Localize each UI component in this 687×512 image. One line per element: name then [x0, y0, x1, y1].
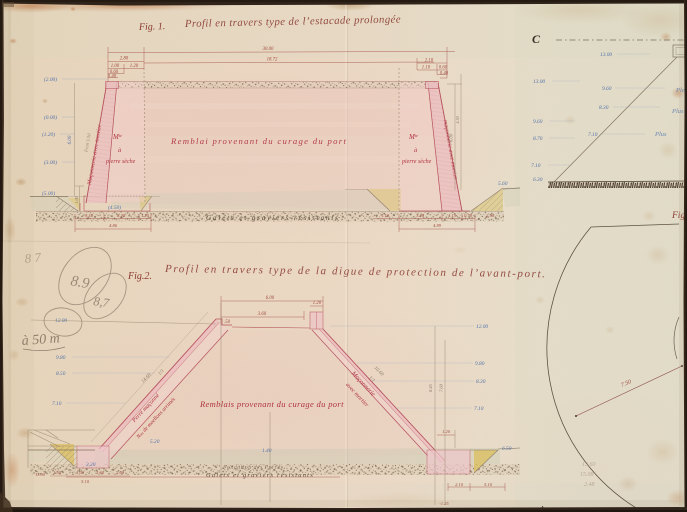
- svg-text:1.20: 1.20: [313, 301, 322, 306]
- svg-text:1.60: 1.60: [96, 470, 105, 475]
- svg-text:3.60: 3.60: [258, 312, 267, 317]
- svg-text:1.15: 1.15: [448, 213, 457, 218]
- svg-text:1.20: 1.20: [130, 64, 139, 69]
- svg-text:.50: .50: [224, 320, 231, 325]
- svg-text:30.00: 30.00: [263, 47, 274, 52]
- svg-text:4.50: 4.50: [455, 115, 460, 123]
- svg-text:Galets et graviers ré: Galets et graviers résistants: [206, 472, 314, 479]
- svg-text:1.10: 1.10: [422, 66, 431, 71]
- svg-text:5.20: 5.20: [150, 439, 160, 445]
- svg-text:Fig. 1.: Fig. 1.: [138, 21, 166, 33]
- svg-text:1.00: 1.00: [74, 195, 79, 203]
- svg-text:13.60: 13.60: [582, 462, 596, 468]
- svg-text:1.00: 1.00: [76, 470, 85, 475]
- svg-text:9.60: 9.60: [602, 86, 612, 92]
- svg-text:0.60: 0.60: [439, 66, 448, 71]
- svg-text:9.80: 9.80: [475, 361, 485, 367]
- svg-text:7.10: 7.10: [531, 163, 541, 169]
- svg-text:(3.00): (3.00): [44, 159, 57, 166]
- svg-text:(2.00): (2.00): [44, 76, 57, 83]
- svg-text:3.20: 3.20: [117, 213, 126, 218]
- svg-text:8,7: 8,7: [93, 294, 111, 310]
- svg-text:Plus: Plus: [654, 131, 667, 138]
- svg-text:0.40: 0.40: [108, 75, 117, 80]
- svg-text:3.20: 3.20: [85, 462, 96, 468]
- svg-text:pierre sèche: pierre sèche: [105, 159, 136, 165]
- svg-text:6.30: 6.30: [533, 177, 543, 183]
- svg-text:7.10: 7.10: [52, 401, 62, 407]
- svg-text:0.70: 0.70: [464, 213, 473, 218]
- svg-text:à: à: [118, 147, 121, 154]
- svg-text:(1.20): (1.20): [42, 131, 55, 138]
- svg-text:C: C: [532, 32, 541, 46]
- svg-text:2.00: 2.00: [116, 470, 125, 475]
- svg-text:6.00: 6.00: [266, 296, 275, 301]
- svg-text:8.30: 8.30: [476, 379, 486, 385]
- svg-text:11.50: 11.50: [35, 472, 46, 477]
- svg-text:2.80: 2.80: [120, 57, 129, 62]
- svg-text:12.00: 12.00: [476, 324, 488, 330]
- svg-text:8.45: 8.45: [428, 383, 433, 392]
- svg-text:13.00: 13.00: [533, 79, 545, 85]
- svg-text:à: à: [414, 147, 417, 154]
- svg-text:0.40: 0.40: [440, 72, 449, 77]
- svg-text:8.70: 8.70: [533, 136, 543, 142]
- svg-text:8.30: 8.30: [599, 105, 609, 111]
- svg-text:15.08: 15.08: [580, 472, 594, 478]
- svg-text:8.50: 8.50: [56, 371, 66, 377]
- svg-text:5.10: 5.10: [484, 482, 493, 487]
- svg-text:3.15: 3.15: [85, 213, 94, 218]
- svg-text:7.60: 7.60: [439, 383, 444, 392]
- svg-text:1.40: 1.40: [262, 448, 272, 454]
- svg-text:13.00: 13.00: [600, 52, 612, 58]
- svg-text:1.00: 1.00: [111, 64, 120, 69]
- svg-text:9.60: 9.60: [533, 119, 543, 125]
- svg-text:2.48: 2.48: [584, 481, 595, 488]
- svg-text:4.89: 4.89: [433, 223, 442, 228]
- svg-text:Remblai provenant du cur: Remblai provenant du curage du port: [170, 136, 347, 146]
- svg-text:7.10: 7.10: [588, 132, 598, 138]
- svg-text:8.9: 8.9: [69, 273, 91, 292]
- svg-text:9.80: 9.80: [56, 355, 66, 361]
- svg-text:8 7: 8 7: [24, 250, 42, 266]
- svg-text:4.86: 4.86: [109, 223, 118, 228]
- svg-text:2.10: 2.10: [425, 59, 434, 64]
- svg-text:7.10: 7.10: [474, 406, 484, 412]
- svg-text:6.50: 6.50: [502, 446, 512, 452]
- svg-text:1.20: 1.20: [442, 429, 451, 434]
- svg-text:2.50: 2.50: [486, 213, 495, 218]
- svg-text:6.00: 6.00: [68, 135, 73, 144]
- svg-text:18.72: 18.72: [267, 58, 278, 63]
- svg-text:(4.50): (4.50): [108, 204, 121, 211]
- svg-text:(0.00): (0.00): [44, 114, 57, 121]
- svg-text:pierre sèche: pierre sèche: [401, 159, 432, 165]
- svg-text:3.20: 3.20: [416, 213, 425, 218]
- svg-text:5.10: 5.10: [81, 479, 90, 484]
- svg-text:Fig.2.: Fig.2.: [127, 271, 152, 282]
- svg-text:1.10: 1.10: [381, 213, 390, 218]
- svg-text:1.15: 1.15: [141, 213, 150, 218]
- svg-text:à 50 m: à 50 m: [21, 331, 60, 349]
- svg-text:Galets et graviers résis: Galets et graviers résistants: [206, 214, 340, 222]
- svg-text:Fondation des Perrés: Fondation des Perrés: [222, 465, 283, 471]
- svg-text:5.60: 5.60: [498, 181, 508, 187]
- svg-text:1.50: 1.50: [53, 470, 62, 475]
- svg-text:2.10: 2.10: [455, 482, 464, 487]
- svg-text:6.00: 6.00: [450, 133, 455, 142]
- svg-text:(5.00): (5.00): [42, 190, 55, 197]
